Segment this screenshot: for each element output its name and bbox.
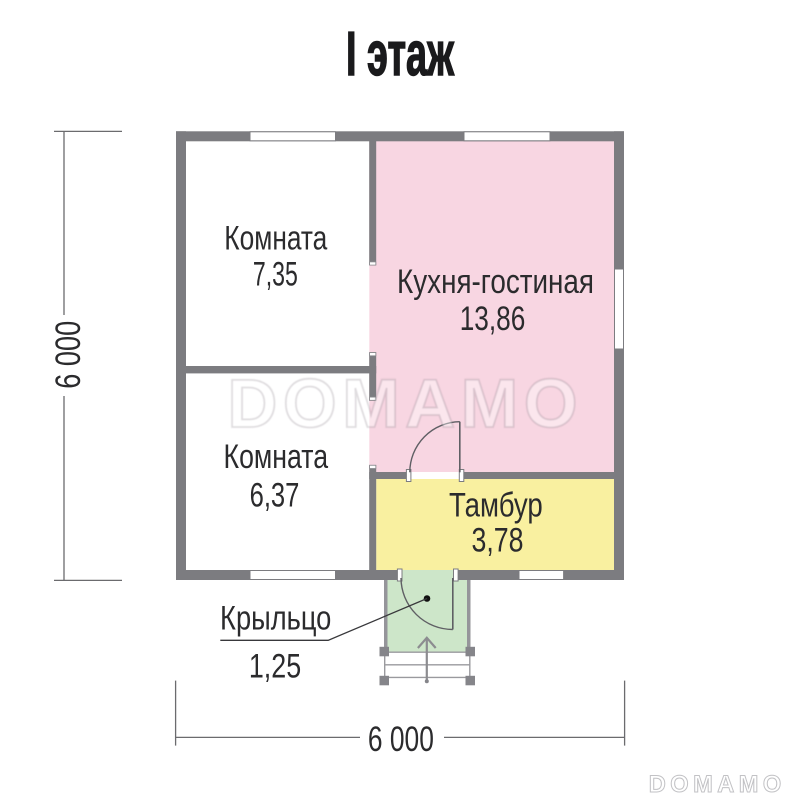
svg-text:Комната: Комната (224, 438, 329, 476)
svg-text:Тамбур: Тамбур (449, 487, 543, 525)
svg-text:Кухня-гостиная: Кухня-гостиная (397, 263, 594, 301)
svg-text:I этаж: I этаж (346, 20, 455, 89)
svg-text:6 000: 6 000 (368, 720, 434, 759)
svg-text:6 000: 6 000 (49, 321, 88, 389)
svg-text:6,37: 6,37 (250, 477, 300, 515)
svg-text:13,86: 13,86 (460, 300, 526, 338)
svg-text:Комната: Комната (224, 220, 328, 258)
svg-text:1,25: 1,25 (249, 648, 301, 686)
svg-text:7,35: 7,35 (253, 255, 298, 293)
svg-text:Крыльцо: Крыльцо (220, 600, 331, 638)
svg-text:DOMAMO: DOMAMO (649, 772, 782, 798)
svg-text:3,78: 3,78 (472, 521, 524, 559)
